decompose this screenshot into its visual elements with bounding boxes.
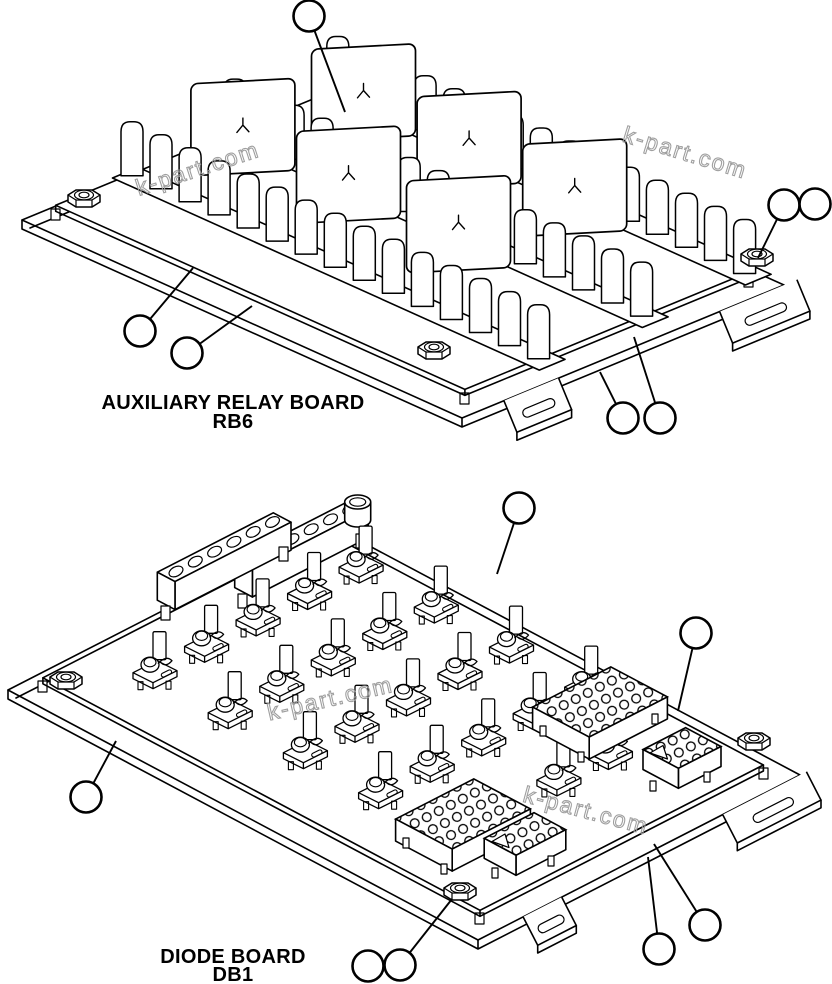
hex-nut-icon [418,342,450,359]
heatsink-fin [646,180,668,234]
db1-pcb [38,533,768,925]
db1-callout-balloon [690,910,721,941]
db1-callout-balloon [504,493,535,524]
heatsink-fin [470,279,492,333]
db1-callout-balloon [385,950,416,981]
hex-nut-icon [68,190,100,207]
rb6-callout-balloon [172,338,203,369]
db1-callout-balloon [644,934,675,965]
heatsink-fin [324,213,346,267]
rb6-callout-balloon [645,403,676,434]
heatsink-fin [440,266,462,320]
heatsink-fin [528,305,550,359]
rb6-callout-balloon [800,189,831,220]
heatsink-fin [499,292,521,346]
hex-nut-icon [50,672,82,689]
heatsink-fin [676,193,698,247]
db1-callout-balloon [681,618,712,649]
heatsink-fin [295,200,317,254]
db1-callout-balloon [353,951,384,982]
heatsink-fin [573,236,595,290]
rb6-figure: AUXILIARY RELAY BOARD RB6 [22,37,810,441]
heatsink-fin [543,223,565,277]
db1-callout-balloon [71,782,102,813]
hex-nut-icon [738,733,770,750]
relay-cover [523,139,627,236]
rb6-board-ref: RB6 [213,411,254,433]
heatsink-fin [411,252,433,306]
heatsink-fin [266,187,288,241]
rb6-callout-balloon [125,316,156,347]
heatsink-fin [602,249,624,303]
hex-nut-icon [741,249,773,266]
heatsink-fin [353,226,375,280]
heatsink-fin [121,122,143,176]
heatsink-fin [631,262,653,316]
rb6-callout-balloon [608,403,639,434]
heatsink-fin [382,239,404,293]
hex-nut-icon [444,883,476,900]
heatsink-fin [705,206,727,260]
rb6-callout-balloon [769,190,800,221]
db1-board-ref: DB1 [213,964,254,984]
heatsink-fin [514,210,536,264]
heatsink-fin [237,174,259,228]
parts-diagram-canvas: AUXILIARY RELAY BOARD RB6 [0,0,832,984]
standoff-cylinder [345,495,371,527]
rb6-callout-balloon [294,1,325,32]
